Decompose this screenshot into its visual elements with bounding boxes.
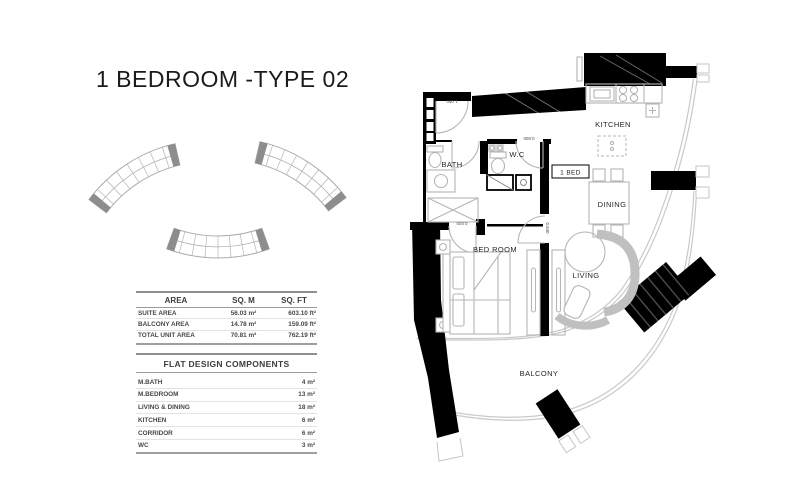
component-name: WC (138, 442, 149, 449)
lounge-chair (562, 284, 592, 321)
facade-bracket-top (697, 64, 709, 73)
table-row: CORRIDOR 6 m² (136, 427, 317, 440)
table-row: WC 3 m² (136, 440, 317, 452)
bath-sink (435, 175, 448, 188)
component-name: LIVING & DINING (138, 404, 190, 411)
dining-chair (593, 169, 605, 181)
wc-door-dimension: 0.800 (523, 136, 535, 141)
component-name: KITCHEN (138, 417, 166, 424)
east-column-bracket-a (696, 166, 709, 177)
component-name: CORRIDOR (138, 430, 173, 437)
sqm-col-header: SQ. M (216, 296, 271, 305)
kitchen-label: KITCHEN (595, 120, 631, 129)
living-door (518, 216, 545, 243)
area-row-sqm: 56.03 m² (216, 310, 271, 317)
facade-bracket-top2 (697, 75, 709, 82)
area-row-sqft: 159.09 ft² (271, 321, 317, 328)
bath-toilet-tank (427, 146, 443, 152)
area-row-sqft: 762.19 ft² (271, 332, 317, 339)
wc-toilet (492, 159, 505, 174)
kitchen-appliance (646, 104, 659, 117)
kitchen-west-wall (540, 142, 549, 214)
tables-panel: AREA SQ. M SQ. FT SUITE AREA 56.03 m² 60… (136, 291, 317, 454)
component-name: M.BEDROOM (138, 391, 178, 398)
bedroom-living-wall (540, 243, 549, 336)
nightstand (436, 240, 450, 254)
area-row-name: BALCONY AREA (136, 321, 216, 328)
key-plan-building-left (84, 136, 186, 217)
floor-plan: 1 BED KITCHEN BATH W.C DINING BED ROOM L… (400, 0, 800, 495)
component-value: 6 m² (302, 430, 315, 437)
bath-label: BATH (441, 160, 462, 169)
bath-west-wall (423, 144, 426, 226)
bed (443, 252, 510, 334)
sqft-col-header: SQ. FT (271, 296, 317, 305)
entrance-door (436, 101, 468, 133)
bath-toilet (429, 153, 441, 168)
bath-vanity (427, 170, 455, 192)
components-table-title: FLAT DESIGN COMPONENTS (136, 355, 317, 373)
stove (616, 84, 644, 103)
key-plan-building-right (249, 134, 351, 215)
balcony-column (535, 389, 590, 453)
component-value: 13 m² (298, 391, 315, 398)
wc-label: W.C (509, 150, 525, 159)
component-value: 6 m² (302, 417, 315, 424)
key-plan-building-bottom (167, 228, 270, 258)
area-col-header: AREA (136, 296, 216, 305)
table-row: KITCHEN 6 m² (136, 414, 317, 427)
bath-shower (428, 198, 478, 222)
table-row: LIVING & DINING 18 m² (136, 402, 317, 415)
kitchen-vent-detail (577, 57, 582, 81)
component-name: M.BATH (138, 379, 162, 386)
table-row: SUITE AREA 56.03 m² 603.10 ft² (136, 308, 317, 319)
bedroom-door-dimension: 0.920 (456, 221, 468, 226)
balcony-label: BALCONY (520, 369, 559, 378)
area-row-sqft: 603.10 ft² (271, 310, 317, 317)
party-wall-end-bracket (437, 438, 463, 461)
dining-label: DINING (598, 200, 627, 209)
component-value: 4 m² (302, 379, 315, 386)
bedroom-label: BED ROOM (473, 245, 517, 254)
top-wall-band (472, 87, 586, 117)
table-row: M.BATH 4 m² (136, 376, 317, 389)
components-table: FLAT DESIGN COMPONENTS M.BATH 4 m² M.BED… (136, 353, 317, 454)
shaft-box (487, 175, 513, 190)
dining-chair (611, 169, 623, 181)
area-row-sqm: 70.81 m² (216, 332, 271, 339)
area-table: AREA SQ. M SQ. FT SUITE AREA 56.03 m² 60… (136, 291, 317, 345)
table-row: M.BEDROOM 13 m² (136, 389, 317, 402)
component-value: 3 m² (302, 442, 315, 449)
site-key-plans (55, 125, 365, 260)
unit-tag: 1 BED (552, 165, 589, 178)
drain-box (516, 175, 531, 190)
table-row: TOTAL UNIT AREA 70.81 m² 762.19 ft² (136, 331, 317, 341)
wc-toilet-tank (490, 152, 506, 158)
living-door-dimension: 0.940 (545, 223, 550, 235)
east-column (651, 171, 696, 190)
wc-north-wall (487, 139, 517, 144)
kitchen-island (598, 136, 626, 156)
living-label: LIVING (573, 271, 600, 280)
bedroom-door (449, 226, 476, 253)
area-row-name: SUITE AREA (136, 310, 216, 317)
bath-wc-divider (480, 141, 488, 174)
wc-south-wall (487, 224, 543, 227)
component-value: 18 m² (298, 404, 315, 411)
kitchen-east-wall-bar (664, 66, 697, 78)
east-column-bracket-b (696, 187, 709, 198)
unit-tag-label: 1 BED (560, 170, 581, 177)
entrance-door-dimension: 1.050 (446, 99, 458, 104)
area-table-header: AREA SQ. M SQ. FT (136, 293, 317, 308)
table-row: BALCONY AREA 14.78 m² 159.09 ft² (136, 319, 317, 330)
area-row-name: TOTAL UNIT AREA (136, 332, 216, 339)
area-row-sqm: 14.78 m² (216, 321, 271, 328)
page-title: 1 BEDROOM -TYPE 02 (96, 66, 349, 93)
